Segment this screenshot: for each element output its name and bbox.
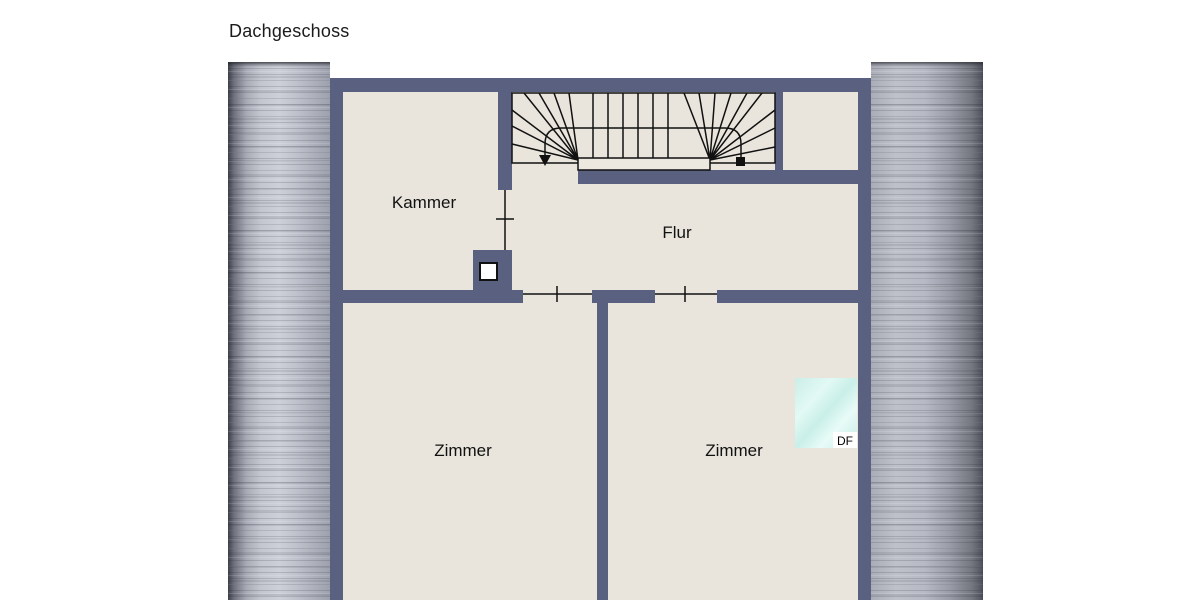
chimney-flue <box>480 263 497 280</box>
wall-mid-right <box>717 290 858 303</box>
stair-landing-edge <box>578 158 710 170</box>
wall-kammer-flur <box>498 92 512 190</box>
room-label-flur: Flur <box>662 223 692 242</box>
wall-zimmer-divider <box>597 303 608 600</box>
stair-walk-start-dot <box>736 157 745 166</box>
roof-window-label: DF <box>837 434 853 448</box>
wall-mid-center <box>592 290 655 303</box>
page-title: Dachgeschoss <box>229 21 349 42</box>
wall-stair-right <box>775 92 783 170</box>
wall-under-stair <box>578 170 858 184</box>
floor-plan: DF Kammer Flur Zimmer Zimmer <box>228 62 983 600</box>
floorplan-drawing: DF Kammer Flur Zimmer Zimmer <box>228 62 983 600</box>
room-label-kammer: Kammer <box>392 193 457 212</box>
room-label-zimmer-right: Zimmer <box>705 441 763 460</box>
room-label-zimmer-left: Zimmer <box>434 441 492 460</box>
roof-window: DF <box>795 378 857 448</box>
wall-mid-left <box>343 290 523 303</box>
